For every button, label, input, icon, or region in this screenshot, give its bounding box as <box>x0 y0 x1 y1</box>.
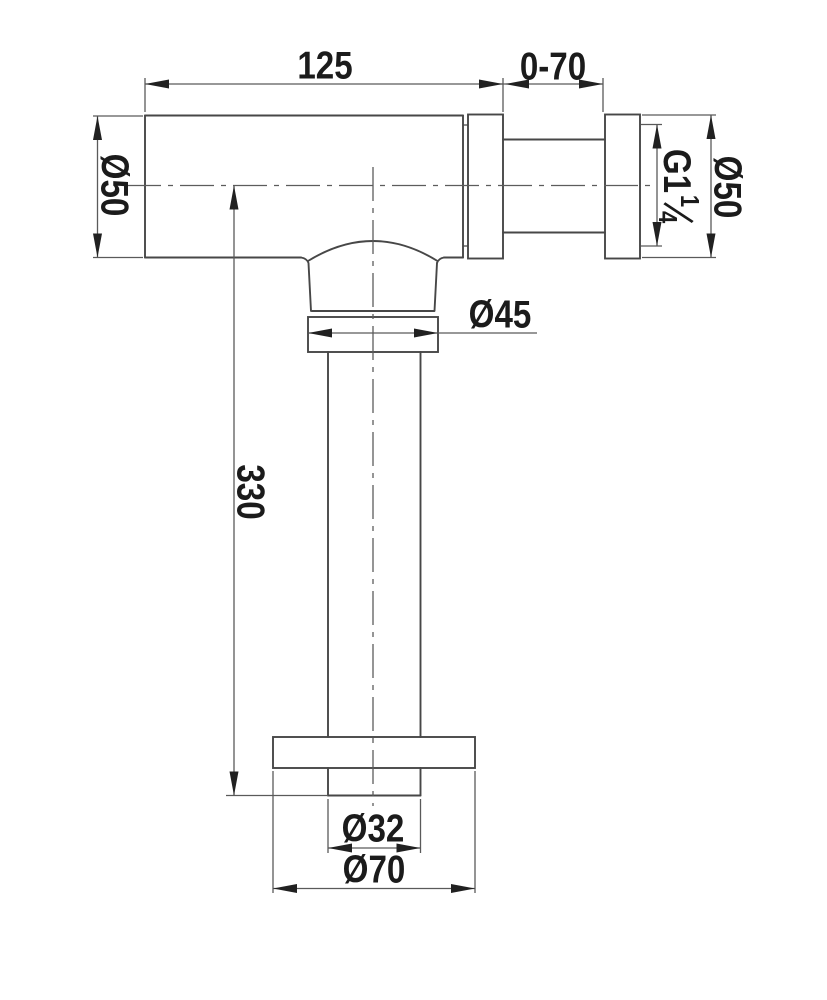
thread-fraction-denominator: 4 <box>655 211 681 223</box>
thread-prefix: G1 <box>658 149 697 193</box>
dimension-label-tailpipe-length: 330 <box>231 464 270 519</box>
dimension-label-body-length: 125 <box>297 47 352 86</box>
thread-fraction-numerator: 1 <box>677 195 703 207</box>
drawing-linework <box>0 0 827 1000</box>
flange <box>273 737 475 768</box>
tailpipe <box>328 352 421 796</box>
dimension-label-diameter-50-left: Ø50 <box>95 154 134 217</box>
inlet-assembly <box>468 115 640 259</box>
bottle-trap-technical-drawing: 125 0-70 Ø50 Ø50 G114 Ø45 330 Ø32 Ø70 <box>0 0 827 1000</box>
thread-fraction: 14 <box>657 195 697 227</box>
centerlines <box>127 167 650 806</box>
dimension-label-telescopic-range: 0-70 <box>520 48 586 87</box>
part-outline <box>145 115 640 796</box>
arrowheads <box>93 80 716 894</box>
dimension-label-tailpipe-diameter: Ø32 <box>342 810 405 849</box>
dimension-label-trap-nut-diameter: Ø45 <box>469 296 532 335</box>
dimension-label-flange-diameter: Ø70 <box>343 851 406 890</box>
body-tube <box>145 116 463 258</box>
dimension-label-diameter-50-right: Ø50 <box>708 156 747 219</box>
dimension-lines <box>93 78 716 893</box>
dimension-label-thread-size: G114 <box>657 149 697 227</box>
